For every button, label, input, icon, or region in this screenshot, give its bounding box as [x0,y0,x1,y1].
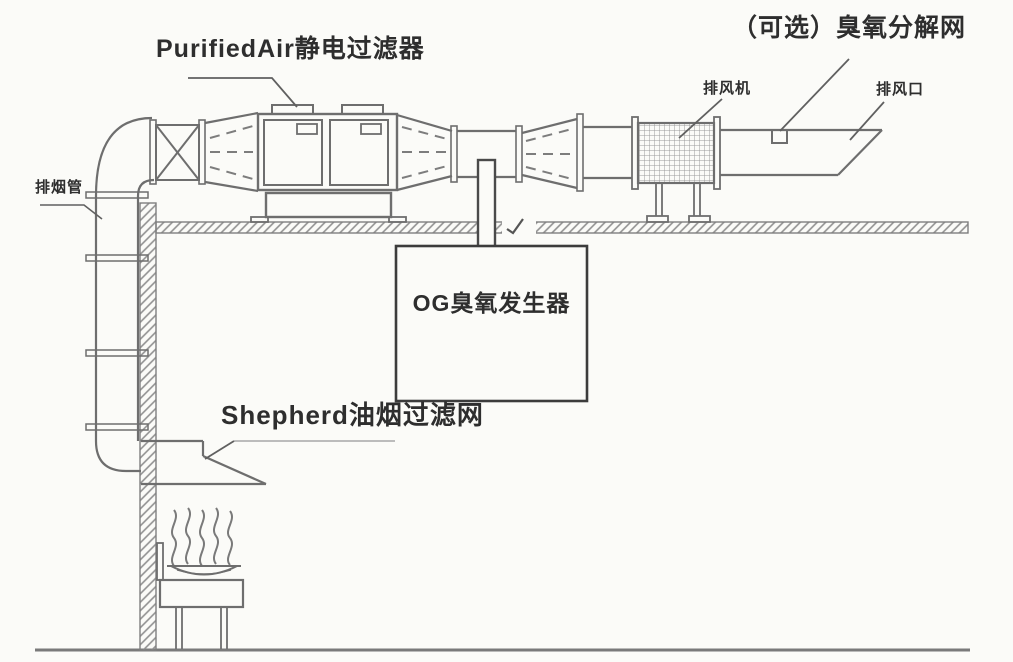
filter-top-lug [272,105,313,114]
base-foot [389,217,406,222]
filter-cell [330,120,388,185]
ceiling [156,222,968,233]
ozone-net-marker [772,130,787,143]
oil-smoke-filter-label: Shepherd油烟过滤网 [221,401,484,430]
stove-body [160,580,243,607]
fan-stand [647,183,710,222]
airflow-dashes [210,126,253,179]
duct-section-b [583,127,632,178]
filter-top-lug [342,105,383,114]
ozone-net-leader [780,59,849,131]
outlet-slant [838,130,882,175]
ozone-feed-pipe [478,160,495,247]
electrostatic-filter-label: PurifiedAir静电过滤器 [156,36,425,64]
wok [167,566,241,575]
steam-lines [172,508,232,566]
ceiling-check-mark [502,219,536,234]
duct-flange [577,114,583,191]
range-hood [141,441,266,484]
filter-cell [264,120,322,185]
airflow-dashes [526,129,572,179]
stove-back-panel [157,543,163,580]
smoke-exhaust-pipe-label: 排烟管 [35,180,83,197]
diagram-canvas: PurifiedAir静电过滤器 （可选）臭氧分解网 排风机 排风口 排烟管 O… [0,0,1013,662]
base-foot [251,217,268,222]
exhaust-fan [632,117,720,189]
expansion-cone [516,114,583,191]
duct-flange [516,126,522,182]
electrostatic-filter-leader [188,78,297,107]
base-frame [266,193,391,217]
filter-outer-box [258,114,397,190]
filter-base [251,193,406,222]
oil-filter-leader [205,441,395,459]
outlet-duct [720,130,882,175]
stand-foot [689,216,710,222]
stand-foot [647,216,668,222]
fan-mesh-box [638,123,714,183]
electrostatic-filter-unit [258,105,397,190]
exhaust-outlet-label: 排风口 [876,82,924,99]
exhaust-fan-label: 排风机 [703,81,751,98]
duct-flange [451,126,457,182]
ozone-generator-label: OG臭氧发生器 [396,246,587,401]
inlet-cone [205,113,258,191]
outlet-cone [397,115,457,190]
smoke-pipe-leader [40,205,102,219]
airflow-dashes [402,127,447,178]
cell-handle [297,124,317,134]
flexible-connector [150,118,205,184]
ozone-decomposition-net-label: （可选）臭氧分解网 [732,15,966,43]
cell-handle [361,124,381,134]
